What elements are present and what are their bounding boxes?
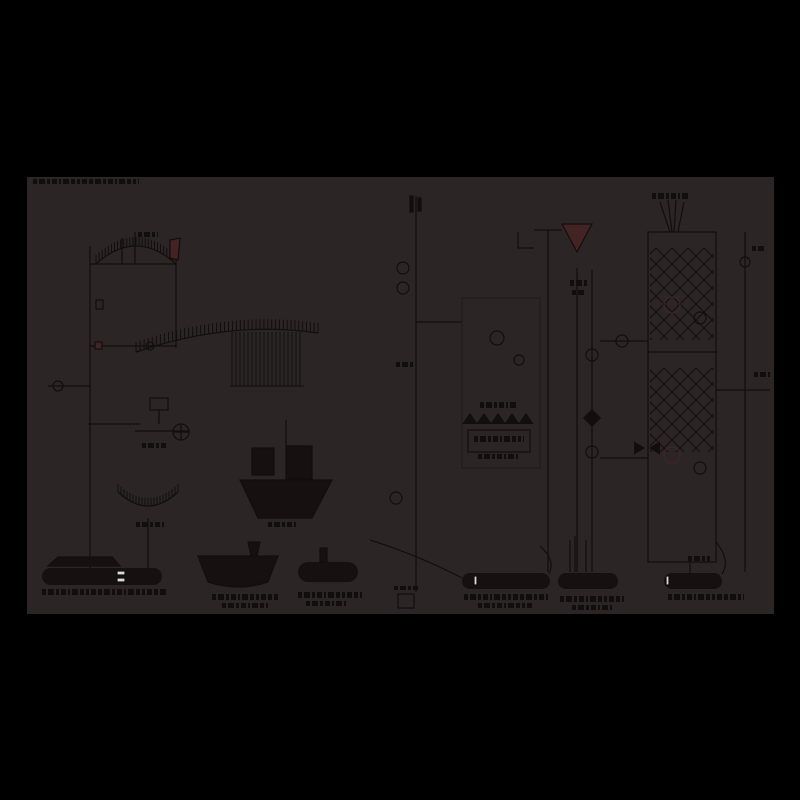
boat-caption-1-seg — [212, 594, 216, 600]
screen-label-3-seg — [484, 454, 490, 459]
tank4-caption-1-seg — [478, 594, 481, 600]
packing-upper — [650, 248, 714, 340]
screen-label-3-seg — [478, 454, 482, 459]
tank1-caption-seg — [98, 589, 102, 595]
right-label-2-seg — [754, 372, 758, 377]
tank6-caption-seg — [724, 594, 728, 600]
boat-caption-2-seg — [266, 603, 268, 608]
boat-caption-2-seg — [236, 603, 239, 608]
tank4-caption-2-seg — [478, 603, 482, 608]
process-diagram — [0, 0, 800, 800]
tank5-caption-2-seg — [572, 605, 576, 610]
tank5-caption-2-seg — [598, 605, 600, 610]
screen-label-3-seg — [497, 454, 502, 459]
vessel3-caption-2-seg — [344, 601, 346, 606]
center-pipe-label-seg — [396, 362, 400, 367]
column-top-label-seg — [652, 193, 656, 199]
tank1-caption-seg — [147, 589, 152, 595]
boat-vessel — [198, 556, 278, 587]
center-top-tick-2 — [418, 198, 421, 211]
screen-label-2-seg — [474, 436, 478, 442]
tank-5 — [558, 573, 618, 589]
vessel3-caption-1-seg — [336, 592, 340, 598]
screen-label-3-seg — [504, 454, 506, 459]
tank6-caption-seg — [668, 594, 672, 600]
sight-glass-1b — [117, 578, 125, 582]
arch-red-chute — [170, 238, 180, 260]
title-text-seg — [71, 179, 75, 184]
right-label-2-seg — [768, 372, 770, 377]
tank1-caption-seg — [91, 589, 96, 595]
right-label-1-seg — [752, 246, 756, 251]
small-vessel-label-seg — [413, 586, 418, 590]
tank4-caption-1-seg — [494, 594, 500, 600]
arch-label-seg — [138, 232, 142, 237]
vessel-3 — [298, 562, 358, 582]
tank1-caption-seg — [112, 589, 115, 595]
center-pipe-label-seg — [402, 362, 408, 367]
tank1-caption-seg — [72, 589, 78, 595]
boat-caption-1-seg — [261, 594, 266, 600]
tank4-caption-1-seg — [502, 594, 506, 600]
title-text-seg — [82, 179, 87, 184]
column-top-label-seg — [678, 193, 680, 199]
hopper-label-seg — [282, 522, 285, 527]
screen-label-3-seg — [492, 454, 495, 459]
center-top-tick-1 — [410, 196, 413, 212]
vessel3-caption-1-seg — [317, 592, 322, 598]
column-top-label-seg — [658, 193, 664, 199]
tank5-caption-1-seg — [560, 596, 564, 602]
tank1-caption-seg — [68, 589, 70, 595]
screen-label-3-seg — [516, 454, 518, 459]
title-text-seg — [59, 179, 61, 184]
tank6-caption-seg — [694, 594, 696, 600]
column-top-label-seg — [666, 193, 669, 199]
hopper-label-seg — [294, 522, 296, 527]
boat-caption-2-seg — [248, 603, 250, 608]
vessel3-caption-2-seg — [325, 601, 330, 606]
tank6-caption-seg — [706, 594, 710, 600]
vessel3-caption-1-seg — [354, 592, 358, 598]
vessel3-caption-1-seg — [360, 592, 362, 598]
vessel3-caption-1-seg — [304, 592, 310, 598]
tank4-caption-1-seg — [539, 594, 544, 600]
small-vessel-label-seg — [408, 586, 411, 590]
screen-label-2-seg — [523, 436, 524, 442]
tank5-caption-1-seg — [566, 596, 572, 602]
boot-label-seg — [136, 522, 140, 527]
boot-label-seg — [155, 522, 160, 527]
tank1-caption-seg — [80, 589, 84, 595]
screen-label-2-seg — [518, 436, 521, 442]
screen-label-1-seg — [494, 402, 497, 408]
tank4-caption-1-seg — [546, 594, 548, 600]
mid-label-seg — [161, 443, 166, 448]
boat-caption-1-seg — [231, 594, 236, 600]
vessel3-stack — [320, 548, 327, 562]
tank4-caption-2-seg — [492, 603, 495, 608]
tank5-caption-1-seg — [579, 596, 584, 602]
boat-caption-2-seg — [228, 603, 234, 608]
funnel-label-2-seg — [572, 290, 576, 295]
tank5-caption-1-seg — [609, 596, 614, 602]
funnel-label-2-seg — [578, 290, 584, 295]
tank5-caption-1-seg — [616, 596, 620, 602]
small-vessel-label-seg — [400, 586, 406, 590]
title-text-seg — [33, 179, 37, 184]
tank1-caption-seg — [42, 589, 46, 595]
screen-label-2-seg — [480, 436, 486, 442]
vessel3-caption-2-seg — [336, 601, 342, 606]
tank5-caption-2-seg — [578, 605, 584, 610]
tank4-caption-1-seg — [508, 594, 511, 600]
tank4-caption-2-seg — [497, 603, 502, 608]
tank1-caption-seg — [104, 589, 110, 595]
tank6-caption-seg — [730, 594, 736, 600]
screen-label-3-seg — [508, 454, 514, 459]
right-label-1-seg — [758, 246, 764, 251]
boot-label-seg — [150, 522, 153, 527]
funnel-label-1-seg — [570, 280, 574, 286]
tank1-caption-seg — [128, 589, 134, 595]
vessel3-caption-2-seg — [320, 601, 323, 606]
tank6-caption-seg — [717, 594, 722, 600]
tank1-caption-seg — [86, 589, 89, 595]
tank4-caption-1-seg — [520, 594, 524, 600]
tank4-caption-2-seg — [522, 603, 525, 608]
tank4-caption-1-seg — [490, 594, 492, 600]
tank1-caption-seg — [154, 589, 158, 595]
column-bottom-label-seg — [707, 556, 710, 561]
title-text-seg — [103, 179, 106, 184]
screen-label-1-seg — [506, 402, 508, 408]
screen-label-2-seg — [504, 436, 510, 442]
tank4-caption-2-seg — [484, 603, 490, 608]
title-text-seg — [133, 179, 136, 184]
vessel3-caption-2-seg — [312, 601, 318, 606]
title-text-seg — [47, 179, 50, 184]
hopper-label-seg — [287, 522, 292, 527]
screen-label-1-seg — [480, 402, 484, 408]
tank4-caption-1-seg — [513, 594, 518, 600]
vessel3-caption-1-seg — [324, 592, 326, 598]
boat-caption-1-seg — [218, 594, 224, 600]
title-text-seg — [119, 179, 125, 184]
screen-label-2-seg — [500, 436, 502, 442]
tank1-hood — [48, 557, 120, 566]
vessel3-caption-1-seg — [328, 592, 334, 598]
tank1-caption-seg — [117, 589, 122, 595]
tank4-caption-2-seg — [527, 603, 532, 608]
boot-label-seg — [142, 522, 148, 527]
tank5-caption-2-seg — [602, 605, 608, 610]
tank6-caption-seg — [738, 594, 741, 600]
boat-caption-2-seg — [260, 603, 264, 608]
tank4-caption-1-seg — [483, 594, 488, 600]
center-pipe-label-seg — [410, 362, 413, 367]
mid-label-seg — [156, 443, 159, 448]
vessel3-caption-2-seg — [332, 601, 334, 606]
sight-glass-6 — [666, 576, 669, 585]
red-port — [95, 342, 102, 349]
tank6-caption-seg — [687, 594, 692, 600]
tank4-caption-2-seg — [504, 603, 506, 608]
right-label-2-seg — [760, 372, 766, 377]
boat-caption-2-seg — [241, 603, 246, 608]
boot-label-seg — [162, 522, 164, 527]
boat-caption-1-seg — [250, 594, 254, 600]
title-text-seg — [138, 179, 139, 184]
figure-stage — [0, 0, 800, 800]
tank5-caption-1-seg — [586, 596, 588, 602]
vessel3-caption-1-seg — [347, 592, 352, 598]
tank4-caption-1-seg — [526, 594, 532, 600]
hopper-box-1 — [252, 448, 274, 475]
tank4-caption-1-seg — [470, 594, 476, 600]
boat-caption-1-seg — [268, 594, 272, 600]
tank5-caption-1-seg — [598, 596, 602, 602]
tank6-caption-seg — [698, 594, 704, 600]
tank5-caption-2-seg — [610, 605, 612, 610]
tank5-caption-1-seg — [604, 596, 607, 602]
column-top-label-seg — [671, 193, 676, 199]
boat-caption-1-seg — [242, 594, 248, 600]
column-bottom-label-seg — [702, 556, 705, 561]
screen-label-1-seg — [499, 402, 504, 408]
screen-label-2-seg — [512, 436, 516, 442]
funnel-label-1-seg — [584, 280, 587, 286]
title-text-seg — [63, 179, 69, 184]
mid-label-seg — [142, 443, 146, 448]
hopper-box-2 — [286, 446, 312, 479]
tank1-caption-seg — [142, 589, 145, 595]
title-text-seg — [127, 179, 131, 184]
hopper-label-seg — [274, 522, 280, 527]
hopper-label-seg — [268, 522, 272, 527]
mid-label-seg — [148, 443, 154, 448]
boat-caption-1-seg — [226, 594, 229, 600]
arch-label-seg — [152, 232, 155, 237]
tank5-caption-2-seg — [591, 605, 596, 610]
tank1-caption-seg — [56, 589, 59, 595]
title-text-seg — [89, 179, 93, 184]
tank1-caption-seg — [136, 589, 140, 595]
boat-caption-1-seg — [238, 594, 240, 600]
boat-caption-1-seg — [256, 594, 259, 600]
tank6-caption-seg — [674, 594, 680, 600]
packing-lower — [650, 368, 714, 452]
screen-label-1-seg — [510, 402, 516, 408]
tank1-caption-seg — [160, 589, 166, 595]
tank-1 — [42, 568, 162, 585]
title-text-seg — [95, 179, 101, 184]
title-text-seg — [52, 179, 57, 184]
column-top-label-seg — [682, 193, 688, 199]
title-text-seg — [39, 179, 45, 184]
tank-6 — [664, 573, 722, 589]
vessel3-caption-1-seg — [342, 592, 345, 598]
boat-caption-2-seg — [222, 603, 226, 608]
tank4-caption-2-seg — [508, 603, 514, 608]
screen-label-2-seg — [488, 436, 491, 442]
boat-caption-2-seg — [252, 603, 258, 608]
column-bottom-label-seg — [694, 556, 700, 561]
tank6-caption-seg — [743, 594, 744, 600]
tank5-caption-1-seg — [574, 596, 577, 602]
tank4-caption-1-seg — [464, 594, 468, 600]
boat-caption-1-seg — [274, 594, 278, 600]
vessel3-caption-1-seg — [298, 592, 302, 598]
tank5-caption-1-seg — [622, 596, 624, 602]
tank1-caption-seg — [61, 589, 66, 595]
title-text-seg — [77, 179, 80, 184]
sight-glass-4 — [474, 576, 477, 585]
screen-label-1-seg — [486, 402, 492, 408]
tank6-caption-seg — [682, 594, 685, 600]
tank5-caption-1-seg — [590, 596, 596, 602]
title-text-seg — [108, 179, 113, 184]
vessel3-caption-1-seg — [312, 592, 315, 598]
screen-label-2-seg — [493, 436, 498, 442]
tank1-caption-seg — [48, 589, 54, 595]
vessel3-caption-2-seg — [306, 601, 310, 606]
sight-glass-1a — [117, 571, 125, 575]
tank5-caption-2-seg — [586, 605, 589, 610]
tank1-caption-seg — [124, 589, 126, 595]
small-vessel-label-seg — [394, 586, 398, 590]
tank6-caption-seg — [712, 594, 715, 600]
arch-label-seg — [157, 232, 158, 237]
tank4-caption-2-seg — [516, 603, 520, 608]
title-text-seg — [115, 179, 117, 184]
tank4-caption-1-seg — [534, 594, 537, 600]
arch-label-seg — [144, 232, 150, 237]
